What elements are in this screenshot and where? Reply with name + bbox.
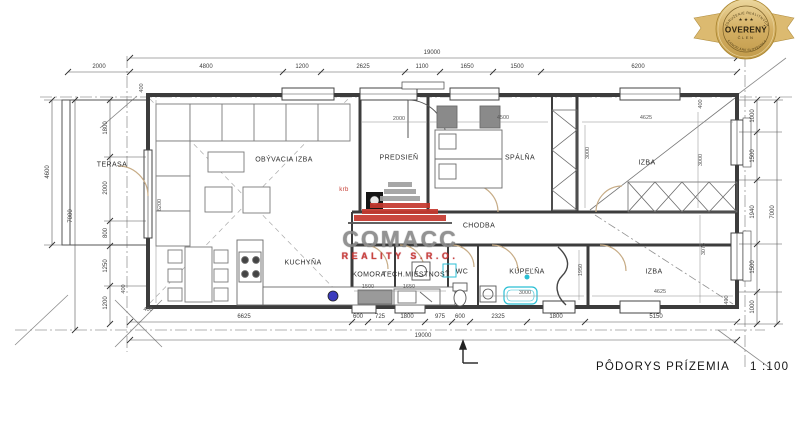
dim-left-4: 800 xyxy=(103,228,109,238)
dim-inner-6: 4625 xyxy=(640,115,652,121)
sofa xyxy=(156,104,350,246)
comacc-logo-name: COMACC xyxy=(328,230,472,250)
dim-bottom-1: 600 xyxy=(353,314,363,320)
dim-inner-3: 4500 xyxy=(497,115,509,121)
dim-bottom-8: 5150 xyxy=(649,314,662,320)
dim-top-2: 1200 xyxy=(295,64,308,70)
badge-title: OVERENÝ xyxy=(725,24,767,35)
dining-set xyxy=(168,247,228,302)
room-label-obyvacia-izba: OBÝVACIA IZBA xyxy=(255,157,313,164)
drawing-title: PÔDORYS PRÍZEMIA xyxy=(596,361,730,373)
room-label-komora: KOMORA xyxy=(352,272,386,279)
comacc-logo-subtitle: REALITY S.R.O. xyxy=(328,251,472,261)
dim-inner-0: 400 xyxy=(139,83,145,92)
dim-left-3: 2000 xyxy=(103,181,109,194)
dim-right-3: 1500 xyxy=(750,260,756,273)
dim-inner-16: 400 xyxy=(143,307,152,313)
izba-top-diagonal xyxy=(590,98,735,210)
dim-inner-10: 3000 xyxy=(519,290,531,296)
room-label-kupelna: KÚPEĽŇA xyxy=(509,269,544,276)
dim-left-5: 1250 xyxy=(103,259,109,272)
dim-left-2: 1800 xyxy=(103,121,109,134)
dim-bottom-5: 600 xyxy=(455,314,465,320)
section-mark xyxy=(460,341,478,363)
dim-inner-2: 2000 xyxy=(393,116,405,122)
dim-bottom-total: 19000 xyxy=(415,333,432,339)
dim-inner-15: 400 xyxy=(121,284,127,293)
dim-right-0: 1000 xyxy=(750,109,756,122)
dim-top-7: 6200 xyxy=(631,64,644,70)
bathroom-fixtures xyxy=(480,247,568,305)
dim-bottom-7: 1800 xyxy=(549,314,562,320)
dim-top-6: 1500 xyxy=(510,64,523,70)
wc-toilet xyxy=(453,283,467,306)
dim-inner-11: 1950 xyxy=(578,264,584,276)
dim-top-1: 4800 xyxy=(199,64,212,70)
dim-right-1: 1500 xyxy=(750,149,756,162)
dim-bottom-6: 2325 xyxy=(491,314,504,320)
dim-inner-12: 4625 xyxy=(654,289,666,295)
room-label-predsien: PREDSIEŇ xyxy=(380,155,419,162)
room-label-izba-bottom: IZBA xyxy=(645,269,662,276)
dim-inner-7: 3000 xyxy=(698,154,704,166)
dim-right-total: 7000 xyxy=(770,205,776,218)
title-block: PÔDORYS PRÍZEMIA 1 :100 xyxy=(596,361,789,373)
badge-stars: ★ ★ ★ xyxy=(739,17,754,23)
room-label-spalna: SPÁLŇA xyxy=(505,155,535,162)
dim-top-0: 2000 xyxy=(92,64,105,70)
dim-bottom-2: 725 xyxy=(375,314,385,320)
closet-band xyxy=(628,182,737,212)
room-label-tech-miestnost: TECH.MIESTNOSŤ xyxy=(382,272,449,279)
comacc-logo: COMACC REALITY S.R.O. xyxy=(328,181,472,261)
dim-top-4: 1100 xyxy=(416,64,429,70)
dim-top-3: 2625 xyxy=(356,64,369,70)
wardrobe-zigzag xyxy=(552,110,577,210)
comacc-logo-icon xyxy=(328,181,472,225)
dim-bottom-4: 975 xyxy=(435,314,445,320)
dim-inner-8: 1500 xyxy=(362,284,374,290)
dim-bottom-0: 6625 xyxy=(237,314,250,320)
room-label-wc: WC xyxy=(456,269,468,276)
dim-top-total: 19000 xyxy=(424,50,441,56)
dim-inner-4: 3000 xyxy=(585,147,591,159)
dim-top-5: 1650 xyxy=(460,64,473,70)
floorplan-page: COMACC REALITY S.R.O. TERASA OBÝVACIA IZ… xyxy=(0,0,800,435)
dim-bottom-3: 1800 xyxy=(400,314,413,320)
dim-inner-13: 3075 xyxy=(701,243,707,255)
dim-inner-5: 400 xyxy=(698,99,704,108)
double-bed xyxy=(435,106,502,188)
dim-inner-9: 1650 xyxy=(403,284,415,290)
floor-drain xyxy=(328,291,338,301)
room-label-izba-top: IZBA xyxy=(638,160,655,167)
verified-member-badge: ZDRUŽENIE REALITNÝCH KANCELÁRIÍ SLOVENSK… xyxy=(688,0,800,68)
dim-inner-14: 400 xyxy=(724,295,730,304)
dim-inner-1: 6200 xyxy=(157,199,163,211)
badge-subtitle: ČLEN xyxy=(738,35,755,40)
dim-left-1: 7000 xyxy=(68,209,74,222)
dim-right-4: 1000 xyxy=(750,300,756,313)
dim-left-0: 4600 xyxy=(45,165,51,178)
room-label-terasa: TERASA xyxy=(97,162,127,169)
dim-left-6: 1200 xyxy=(103,296,109,309)
drawing-scale: 1 :100 xyxy=(750,361,789,373)
dim-right-2: 1940 xyxy=(750,205,756,218)
room-label-kuchyna: KUCHYŇA xyxy=(284,260,321,267)
